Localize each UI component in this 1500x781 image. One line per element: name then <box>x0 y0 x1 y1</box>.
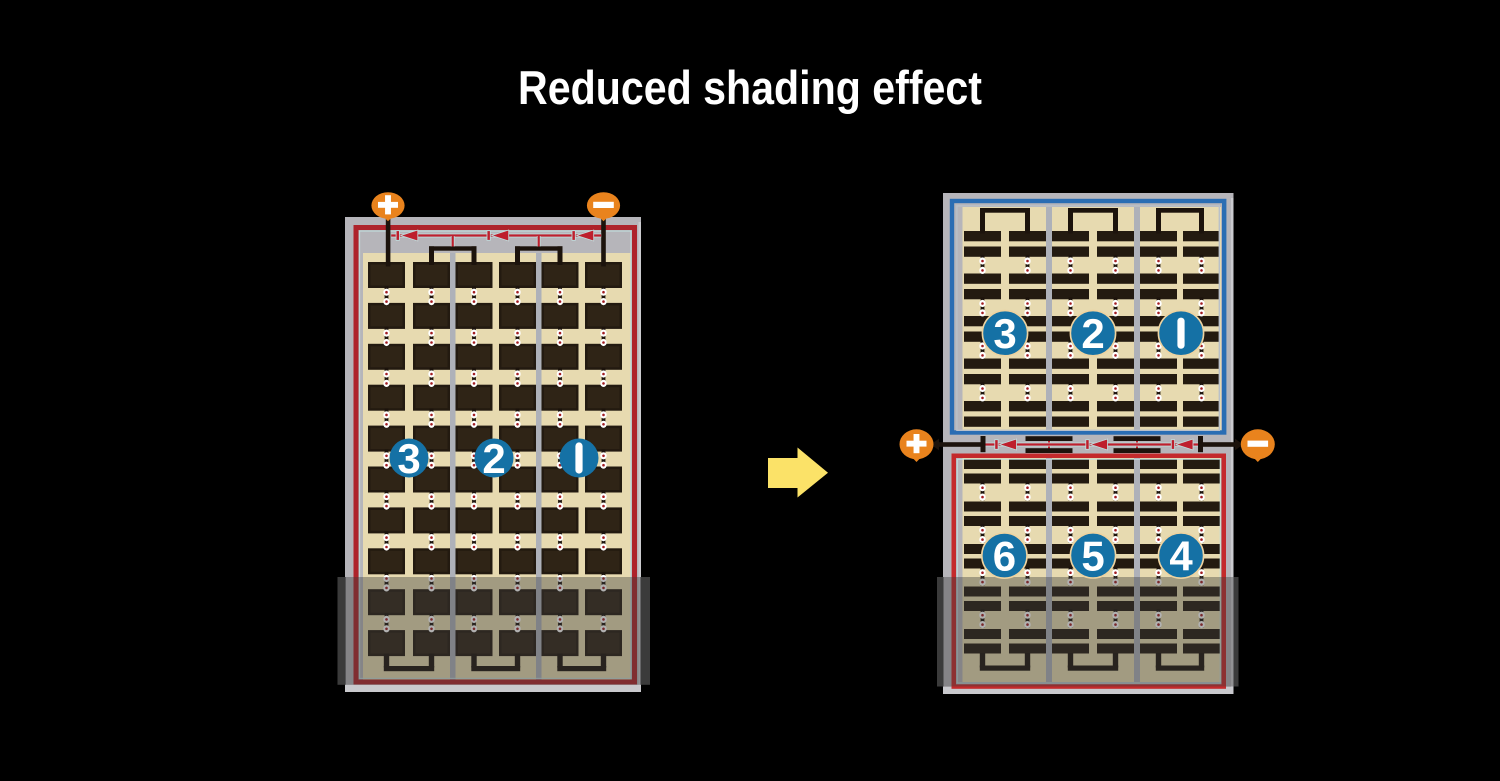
svg-text:3: 3 <box>993 310 1016 357</box>
svg-text:Reduced shading effect: Reduced shading effect <box>518 61 982 114</box>
svg-text:2: 2 <box>482 435 505 482</box>
svg-text:5: 5 <box>1081 532 1104 579</box>
svg-text:4: 4 <box>1169 533 1193 580</box>
svg-text:2: 2 <box>1081 310 1104 357</box>
svg-text:3: 3 <box>397 435 420 482</box>
svg-text:6: 6 <box>993 533 1016 580</box>
